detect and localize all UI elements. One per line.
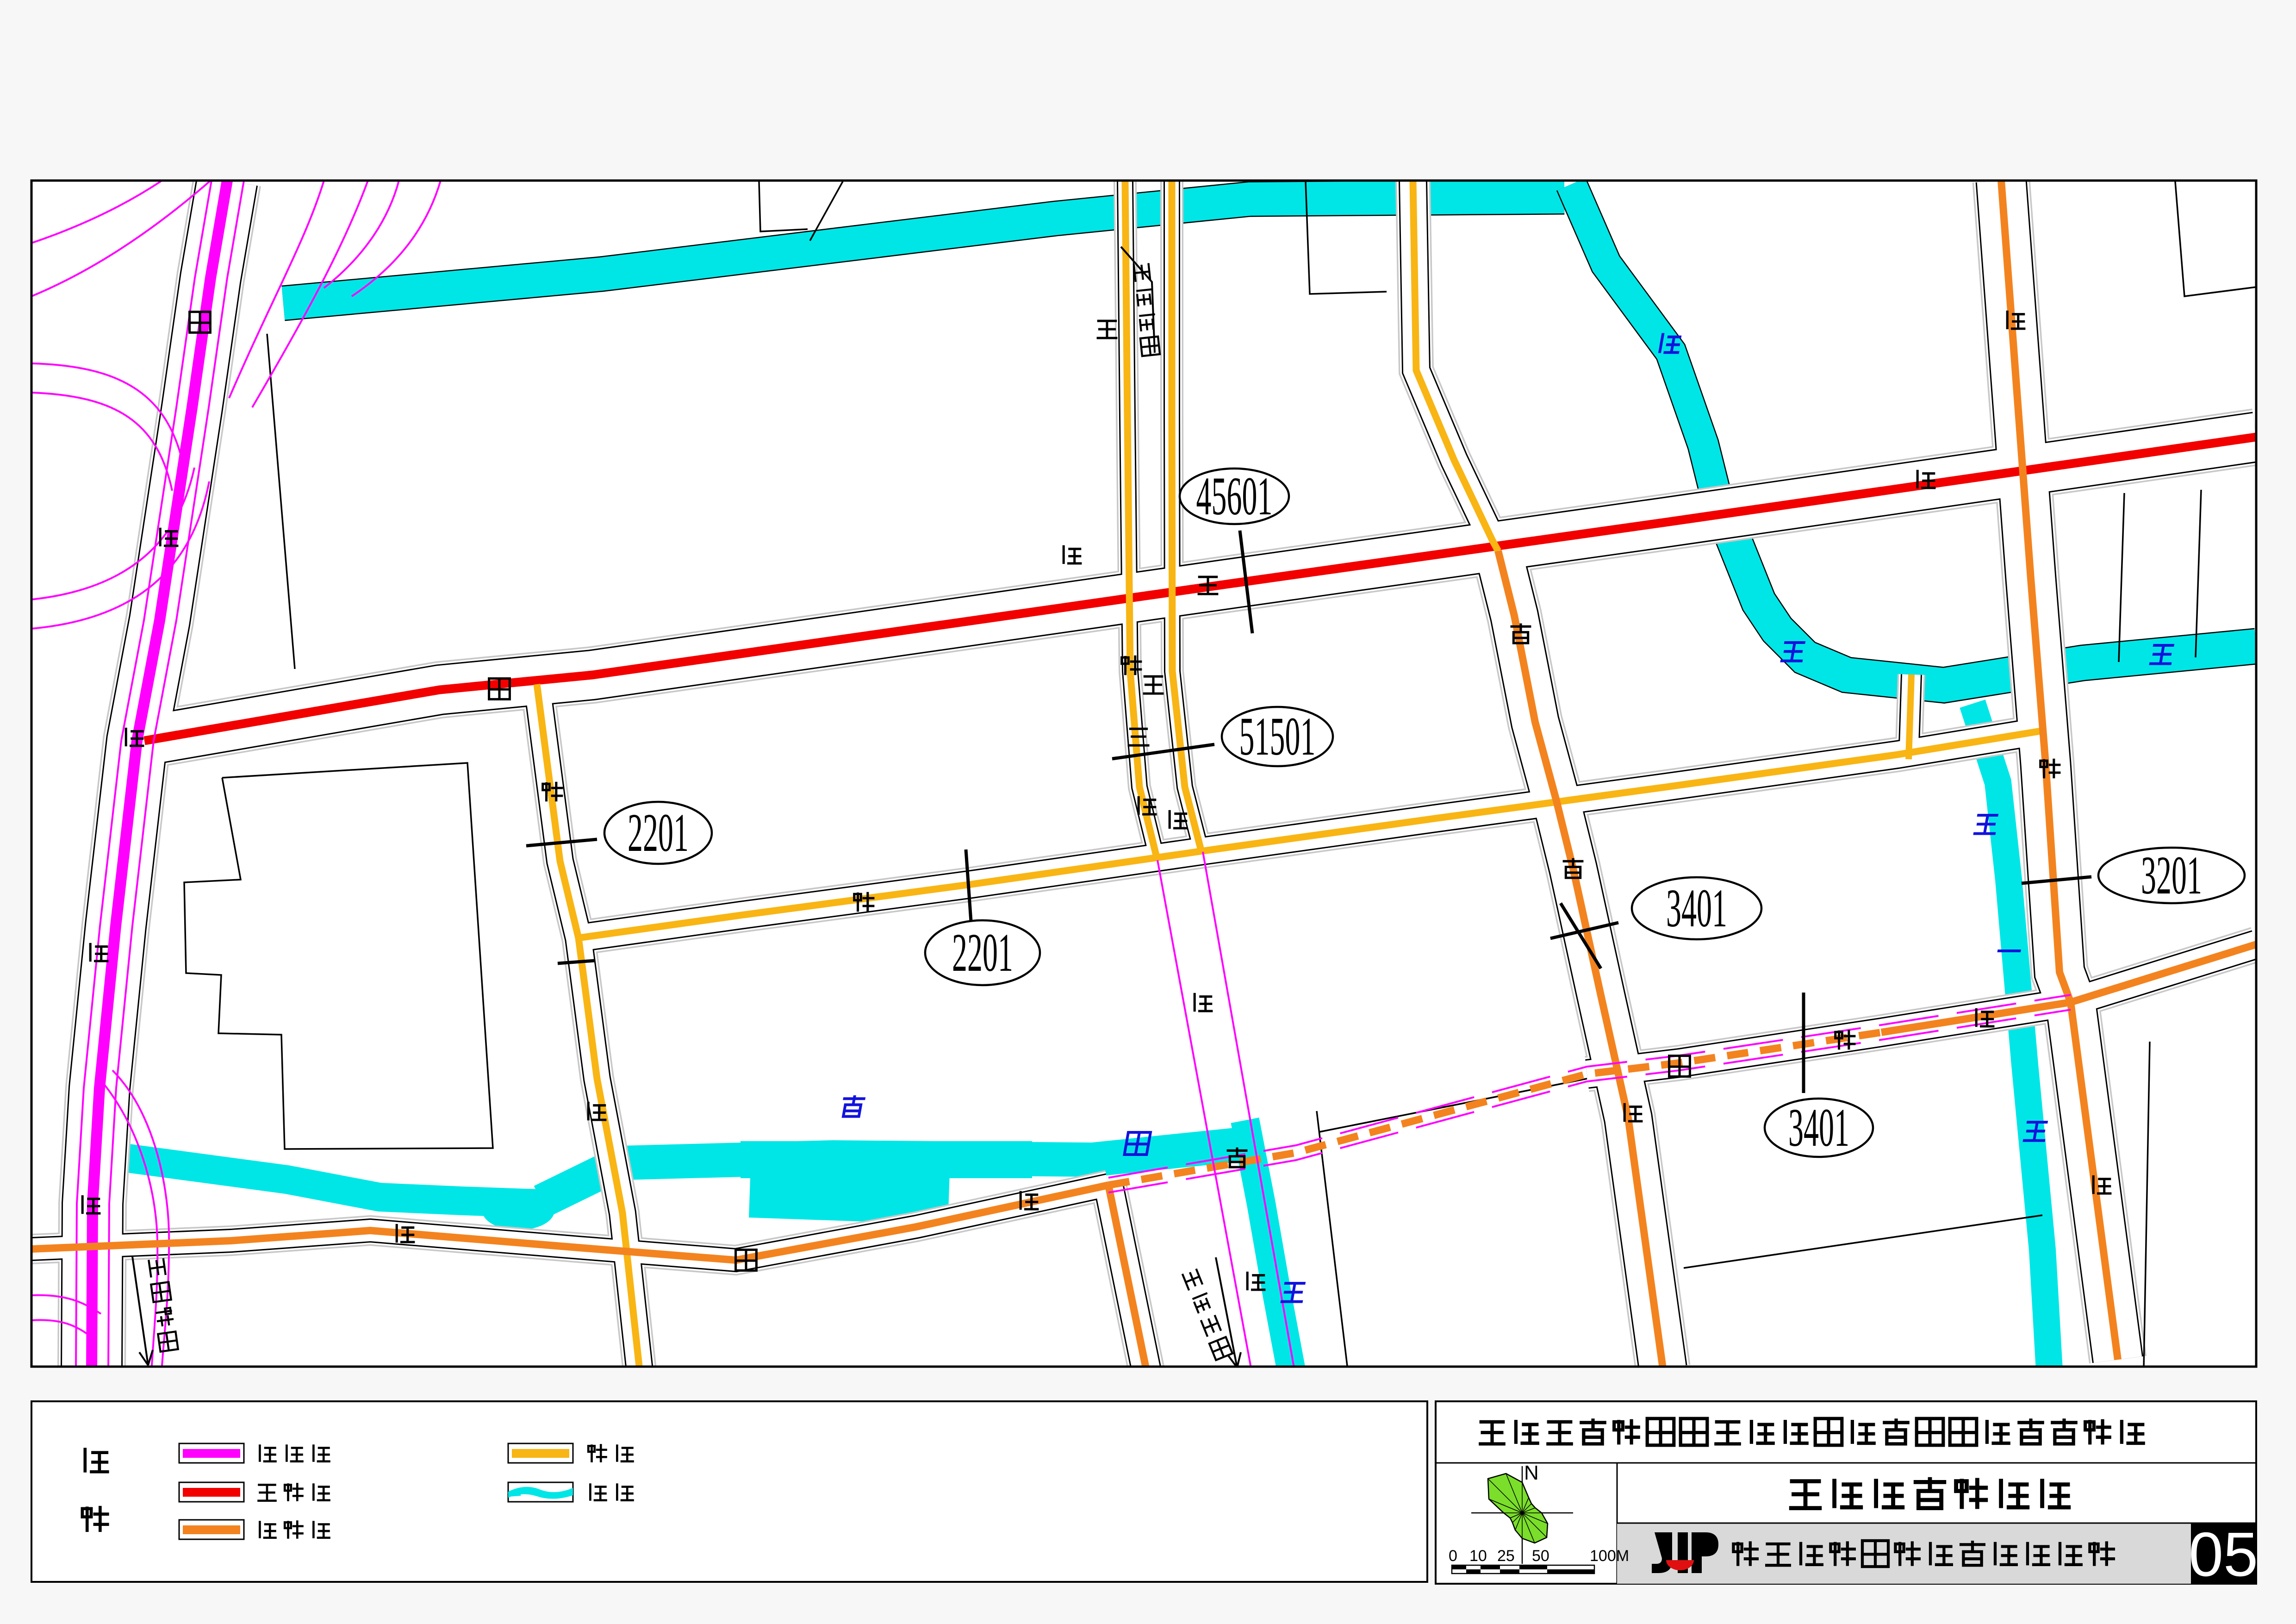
svg-text:3201: 3201 xyxy=(2141,845,2202,906)
svg-text:N: N xyxy=(1524,1462,1539,1484)
svg-text:50: 50 xyxy=(1532,1547,1549,1565)
svg-text:3401: 3401 xyxy=(1788,1097,1849,1158)
svg-text:51501: 51501 xyxy=(1239,706,1316,767)
svg-text:25: 25 xyxy=(1497,1547,1515,1565)
svg-text:45601: 45601 xyxy=(1196,466,1273,526)
svg-text:100M: 100M xyxy=(1590,1547,1629,1565)
svg-text:10: 10 xyxy=(1469,1547,1487,1565)
svg-text:2201: 2201 xyxy=(952,922,1013,983)
svg-text:2201: 2201 xyxy=(628,802,689,863)
svg-text:05: 05 xyxy=(2189,1519,2258,1589)
svg-text:0: 0 xyxy=(1449,1547,1457,1565)
svg-text:3401: 3401 xyxy=(1666,878,1727,938)
